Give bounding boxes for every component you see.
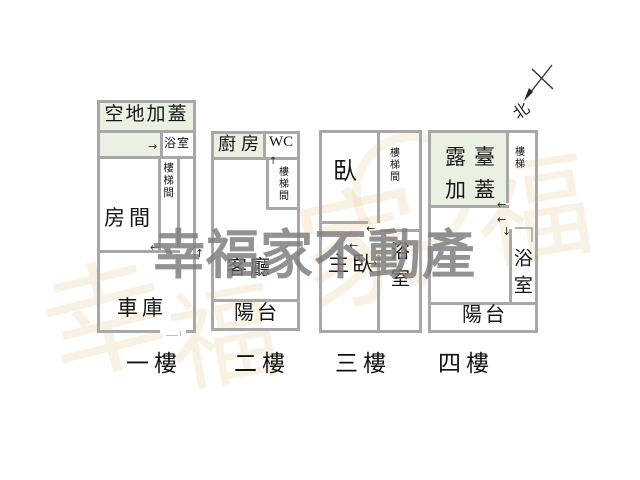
floor4-name: 四樓 [438, 344, 494, 378]
door-arrow-icon: ← [148, 141, 157, 152]
floor2-wc-label: WC [269, 134, 293, 151]
floor1-garage-label: 車庫 [117, 296, 167, 320]
floor3-bedroom-label: 臥 [333, 159, 357, 187]
floor1-stairwell-label: 樓梯間 [161, 162, 173, 200]
floor4-stairs-label: 樓梯 [512, 146, 524, 170]
floor4-balcony-label: 陽台 [462, 304, 508, 327]
door-arrow-icon: ↓ [502, 226, 511, 237]
floor1-room-label: 房間 [104, 206, 154, 230]
floor2-balcony-label: 陽台 [234, 302, 280, 325]
garage-door-opening [160, 330, 186, 333]
door-arrow-icon: ← [497, 214, 506, 225]
brand-watermark: 幸福家不動產 [152, 213, 476, 289]
door-arrow-icon: ← [497, 199, 506, 210]
floor4-bathroom-label: 浴室 [510, 248, 532, 302]
floor2-kitchen-label: 廚房 [218, 134, 264, 155]
floor2-stairwell-label: 樓梯間 [276, 166, 288, 202]
floor3-stairwell-label: 樓梯間 [387, 147, 399, 183]
north-label: 北 [510, 99, 533, 123]
floorplan-canvas: 幸 福 家 福 空地加蓋 浴室 樓梯間 房間 車庫 ← ← ↑ 一樓 廚房 WC… [0, 0, 640, 480]
floor1-name: 一樓 [126, 344, 182, 378]
floor4-terrace-label: 露臺加蓋 [443, 141, 505, 206]
floor3-name: 三樓 [335, 344, 391, 378]
door-arrow-icon: ↑ [269, 157, 277, 167]
floor1-open-addition-label: 空地加蓋 [100, 104, 193, 126]
floor1-bathroom-label: 浴室 [164, 137, 190, 151]
floor2-name: 二樓 [234, 344, 290, 378]
north-compass-icon: 北 [503, 58, 565, 131]
